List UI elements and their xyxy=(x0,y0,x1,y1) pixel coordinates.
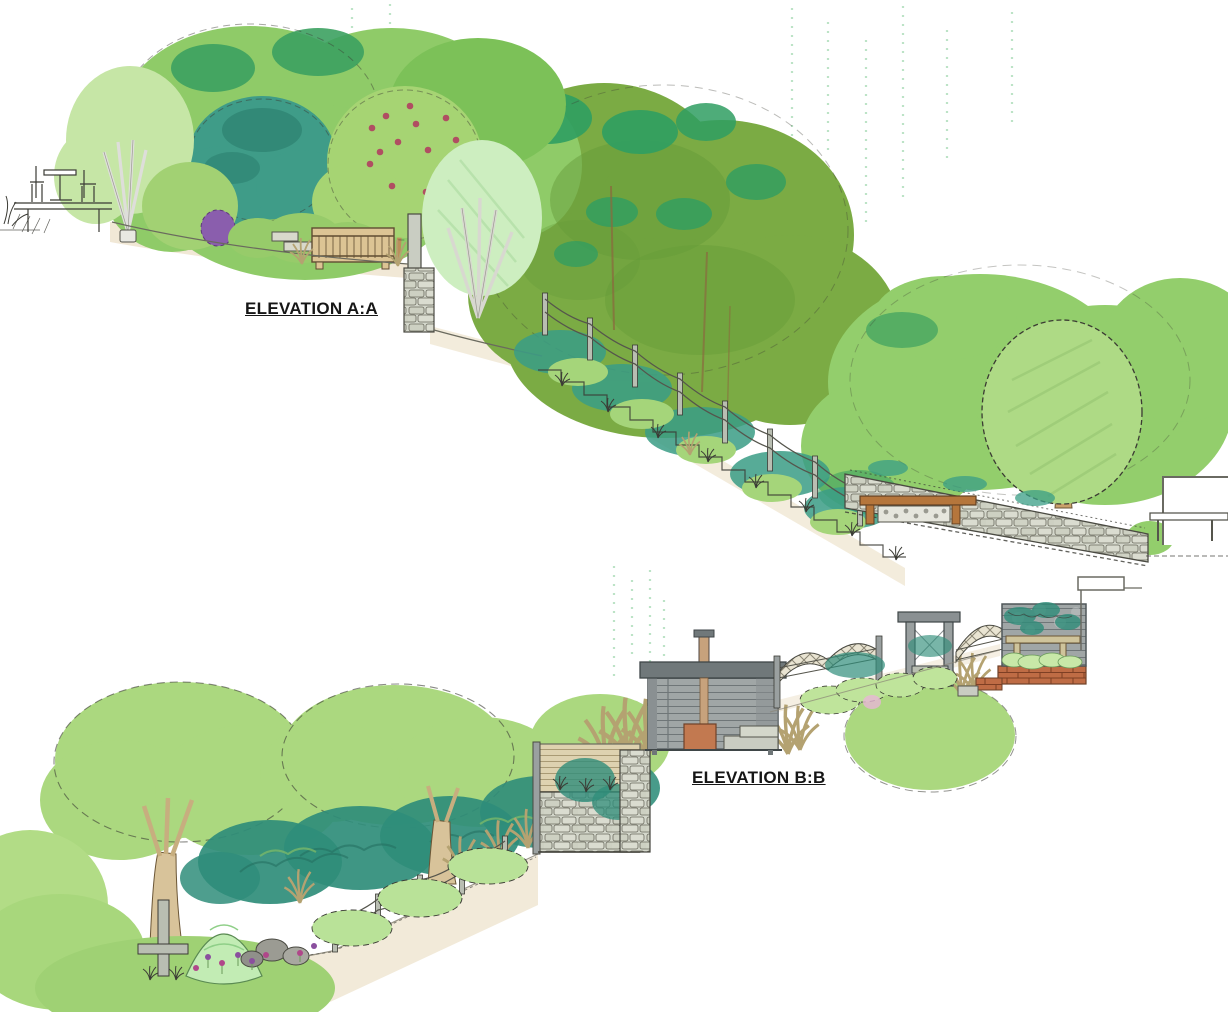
stove-flue-pipe xyxy=(700,678,708,724)
elevation-b-label: ELEVATION B:B xyxy=(692,768,826,788)
elevation-a-drawing xyxy=(0,4,1228,586)
shed-flue xyxy=(699,636,709,664)
elevation-b-drawing xyxy=(0,566,1142,1012)
brick-retaining-wall xyxy=(958,666,1086,696)
drawing-canvas: ELEVATION A:A ELEVATION B:B xyxy=(0,0,1228,1012)
garden-studio-shed xyxy=(640,630,786,755)
shed-flue-cap xyxy=(694,630,714,637)
stone-wall-column xyxy=(620,750,650,852)
log-burner-stove xyxy=(684,724,716,750)
left-plant-sketch xyxy=(0,196,40,230)
elevation-a-label: ELEVATION A:A xyxy=(245,299,378,319)
garden-elevations-drawing xyxy=(0,0,1228,1012)
shed-roof xyxy=(640,662,786,678)
slatted-screen-wall xyxy=(1002,602,1086,669)
stone-bench-blocks xyxy=(724,736,778,750)
house-eaves xyxy=(1078,577,1142,650)
